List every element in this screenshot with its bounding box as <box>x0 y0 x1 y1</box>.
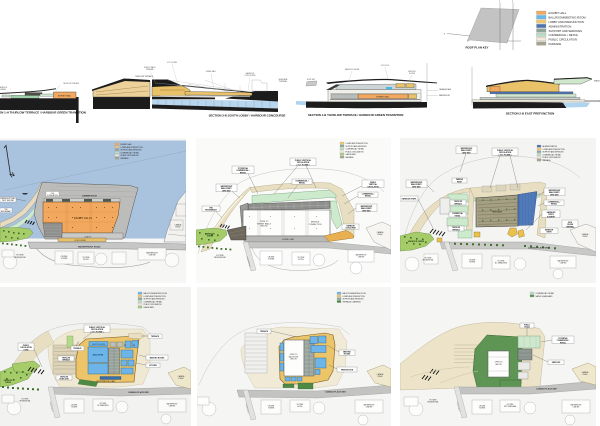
svg-text:SECTION 3-B SOUTH LOBBY / HARB: SECTION 3-B SOUTH LOBBY / HARBOUR CONCOU… <box>209 114 286 118</box>
svg-text:THURLOW TERRACE: THURLOW TERRACE <box>135 75 154 78</box>
svg-text:ROOMS: ROOMS <box>409 73 415 75</box>
svg-text:FUNCTION ROOM: FUNCTION ROOM <box>92 344 106 346</box>
svg-text:PARKADE: PARKADE <box>492 211 503 214</box>
svg-text:LOBBY AND PREFUNCTION: LOBBY AND PREFUNCTION <box>144 295 167 298</box>
svg-text:BIKE WAY: BIKE WAY <box>222 189 231 192</box>
svg-text:MR: MR <box>133 345 135 347</box>
svg-text:HARBOUR STEPS: HARBOUR STEPS <box>402 198 418 201</box>
svg-text:RESIDENTIAL: RESIDENTIAL <box>422 259 433 262</box>
svg-text:TERRACED GARDENS: TERRACED GARDENS <box>343 300 362 303</box>
svg-text:PARKADE: PARKADE <box>543 159 552 162</box>
svg-text:THURLOW: THURLOW <box>452 227 461 229</box>
svg-text:COMMERCIAL / RETAIL: COMMERCIAL / RETAIL <box>144 300 163 303</box>
svg-text:2: 2 <box>512 1 514 3</box>
svg-text:ROOF KEY: ROOF KEY <box>307 79 315 81</box>
svg-text:LOBBY AND PREFUNCTION: LOBBY AND PREFUNCTION <box>343 295 366 298</box>
svg-text:COMMERCIAL / RETAIL: COMMERCIAL / RETAIL <box>536 292 555 295</box>
svg-text:CENTRE: CENTRE <box>149 255 157 257</box>
svg-text:RESIDENTIAL: RESIDENTIAL <box>14 256 26 259</box>
svg-text:COMMERCIAL / RETAIL: COMMERCIAL / RETAIL <box>543 153 562 156</box>
svg-text:( VCC FLUME ): ( VCC FLUME ) <box>91 331 104 333</box>
svg-text:ADMINISTRATION: ADMINISTRATION <box>549 24 572 28</box>
svg-text:3: 3 <box>444 34 446 36</box>
svg-text:CANADA PLACE WAY: CANADA PLACE WAY <box>128 391 150 394</box>
svg-text:SECTION 2-B EAST PREFUNCTION: SECTION 2-B EAST PREFUNCTION <box>506 112 555 116</box>
svg-text:TERRACE: TERRACE <box>73 347 82 350</box>
svg-text:SECTION 1-B THURLOW TERRACE /: SECTION 1-B THURLOW TERRACE / HARBOUR GR… <box>308 113 403 117</box>
svg-text:CORE: CORE <box>24 349 30 351</box>
svg-text:LANDSCAPE: LANDSCAPE <box>144 306 155 309</box>
svg-text:TOWER: TOWER <box>268 259 275 261</box>
svg-text:TERRACE: TERRACE <box>151 335 160 338</box>
svg-text:CENTRE: CENTRE <box>358 257 365 259</box>
svg-text:1: 1 <box>499 1 501 3</box>
svg-text:HARBOUR: HARBOUR <box>0 86 8 89</box>
svg-text:RETAIL: RETAIL <box>560 341 566 344</box>
svg-text:SUPPORT AND SERVICES: SUPPORT AND SERVICES <box>343 298 365 301</box>
svg-text:MEETING ROOMS: MEETING ROOMS <box>150 358 165 360</box>
svg-text:HARBOUR GREEN: HARBOUR GREEN <box>345 68 360 71</box>
svg-text:EXHIBIT HALL: EXHIBIT HALL <box>549 11 567 15</box>
svg-text:HARBOUR GREEN: HARBOUR GREEN <box>408 240 425 243</box>
svg-text:SUPPORT AND SERVICES: SUPPORT AND SERVICES <box>543 151 565 154</box>
svg-text:RETAIL: RETAIL <box>299 182 306 185</box>
svg-text:ADMINISTRATION: ADMINISTRATION <box>543 145 558 148</box>
svg-text:HOTEL: HOTEL <box>298 259 304 261</box>
svg-text:EXHIBIT HALL: EXHIBIT HALL <box>58 94 72 97</box>
svg-text:LOBBY AND PREFUNCTION: LOBBY AND PREFUNCTION <box>121 146 144 149</box>
svg-text:THURLOW: THURLOW <box>62 357 71 359</box>
svg-text:LOBBY AND PREFUNCTION: LOBBY AND PREFUNCTION <box>346 142 369 145</box>
svg-text:BIKE WAY: BIKE WAY <box>362 209 371 212</box>
svg-text:SEASIDE: SEASIDE <box>594 80 600 83</box>
svg-text:COMMERCIAL / RETAIL: COMMERCIAL / RETAIL <box>346 148 365 151</box>
svg-text:CENTRE: CENTRE <box>169 406 176 408</box>
svg-text:CENTRE: CENTRE <box>573 407 580 409</box>
svg-text:MEETING: MEETING <box>408 71 416 73</box>
svg-text:FUTURE: FUTURE <box>507 404 513 406</box>
svg-text:RETAIL: RETAIL <box>365 195 371 198</box>
svg-text:SUPPORT AND SERVICES: SUPPORT AND SERVICES <box>549 29 583 33</box>
svg-text:PUBLIC CIRCULATION: PUBLIC CIRCULATION <box>121 154 140 157</box>
svg-text:WATERFRONT ROAD: WATERFRONT ROAD <box>78 246 101 249</box>
svg-text:RETAIL: RETAIL <box>551 203 557 206</box>
svg-text:LUMBER DOCK: LUMBER DOCK <box>82 196 98 198</box>
svg-text:HOTEL SITE: HOTEL SITE <box>59 379 68 381</box>
svg-text:BIKE WAY: BIKE WAY <box>550 193 559 196</box>
svg-text:THURLOW: THURLOW <box>60 376 69 378</box>
svg-text:TERMINAL: TERMINAL <box>279 80 288 83</box>
svg-text:HOTEL: HOTEL <box>83 259 89 261</box>
svg-text:PARKADE: PARKADE <box>121 157 130 160</box>
svg-text:EXHIBIT HALL: EXHIBIT HALL <box>121 143 132 146</box>
svg-text:LOBBY AND PREFUNCTION: LOBBY AND PREFUNCTION <box>549 20 584 24</box>
svg-text:TOWER: TOWER <box>479 408 486 410</box>
svg-text:GREAT HALL: GREAT HALL <box>206 70 216 73</box>
svg-text:TERRACE: TERRACE <box>260 330 269 333</box>
svg-text:COMMERCIAL / RETAIL: COMMERCIAL / RETAIL <box>121 151 140 154</box>
svg-text:BIKE WAY: BIKE WAY <box>462 151 471 154</box>
svg-text:BELOW: BELOW <box>290 359 297 361</box>
svg-text:RESIDENTIAL: RESIDENTIAL <box>427 401 438 404</box>
svg-text:CANADA PLACE WAY: CANADA PLACE WAY <box>536 388 558 391</box>
svg-text:CIRCULATION: CIRCULATION <box>367 185 379 188</box>
svg-text:CANADA PLACE: CANADA PLACE <box>439 88 451 91</box>
svg-text:BIKE WAY: BIKE WAY <box>412 185 421 188</box>
svg-text:HOTEL: HOTEL <box>297 406 302 408</box>
svg-text:GREEN: GREEN <box>207 236 214 238</box>
svg-text:FUTURE: FUTURE <box>100 403 106 405</box>
svg-text:STEPS: STEPS <box>546 232 551 234</box>
svg-text:SERVICES: SERVICES <box>552 362 561 364</box>
svg-text:PARKADE: PARKADE <box>346 156 355 159</box>
svg-text:LOWER LOBBY: LOWER LOBBY <box>282 239 295 241</box>
svg-text:BALLROOM/MEETING ROOM: BALLROOM/MEETING ROOM <box>343 292 367 295</box>
svg-text:CANADA PLACE WAY: CANADA PLACE WAY <box>528 247 550 250</box>
svg-text:PUBLIC CIRCULATION: PUBLIC CIRCULATION <box>543 156 562 159</box>
svg-text:VCC FLUME: VCC FLUME <box>167 62 178 64</box>
svg-text:PUBLIC CIRCULATION: PUBLIC CIRCULATION <box>346 150 365 153</box>
svg-text:EXHIBIT HALLS: EXHIBIT HALLS <box>74 217 92 220</box>
svg-text:BC SEABUSES: BC SEABUSES <box>495 262 508 265</box>
svg-text:BIKEWAY: BIKEWAY <box>146 68 154 71</box>
svg-text:LANDSCAPE: LANDSCAPE <box>346 153 357 156</box>
svg-text:TOWER: TOWER <box>268 408 275 410</box>
svg-text:PUBLIC: PUBLIC <box>524 324 531 326</box>
svg-text:CENTRE: CENTRE <box>560 263 567 265</box>
svg-text:NATIVE GRASSLAND: NATIVE GRASSLAND <box>536 295 554 298</box>
svg-text:SUPPORT AND SERVICES: SUPPORT AND SERVICES <box>121 149 143 152</box>
svg-text:ROOF PLAN KEY: ROOF PLAN KEY <box>466 46 489 50</box>
svg-text:THE: THE <box>5 209 8 211</box>
svg-text:BELOW: BELOW <box>261 226 268 228</box>
svg-text:CANADA PLACE WAY: CANADA PLACE WAY <box>325 391 347 394</box>
svg-text:PUBLIC CIRCULATION: PUBLIC CIRCULATION <box>549 38 578 42</box>
svg-text:ELEMENT: ELEMENT <box>547 216 556 218</box>
svg-text:PILE: PILE <box>51 193 54 195</box>
svg-text:CRUISE: CRUISE <box>567 224 573 226</box>
svg-text:ON 1-H THURLOW TERRACE / HARBO: ON 1-H THURLOW TERRACE / HARBOUR GREEN T… <box>0 111 86 115</box>
svg-text:WATERFRONT: WATERFRONT <box>439 94 450 97</box>
svg-text:BELOW: BELOW <box>495 364 502 366</box>
svg-text:BALLROOM: BALLROOM <box>93 354 104 357</box>
svg-text:BALLROOM/MEETING ROOM: BALLROOM/MEETING ROOM <box>549 16 587 20</box>
svg-text:TOWER: TOWER <box>61 258 68 260</box>
svg-text:PREFUNCTION: PREFUNCTION <box>341 370 354 372</box>
svg-text:BALLROOM/MEETING ROOM: BALLROOM/MEETING ROOM <box>144 292 168 295</box>
svg-text:( VCC FLUME ): ( VCC FLUME ) <box>297 164 310 166</box>
svg-text:CONNECTION: CONNECTION <box>309 224 322 226</box>
svg-text:( VCC FLUME ): ( VCC FLUME ) <box>499 154 512 156</box>
svg-text:ROOMS: ROOMS <box>344 354 351 356</box>
svg-text:EXHIBIT HALL: EXHIBIT HALL <box>376 95 390 98</box>
svg-text:REGISTRATION LOBBY: REGISTRATION LOBBY <box>97 380 117 383</box>
svg-text:CONCOURSE: CONCOURSE <box>245 75 257 77</box>
svg-text:FUTURE: FUTURE <box>297 404 303 406</box>
svg-text:PUBLIC CIRCULATION: PUBLIC CIRCULATION <box>144 303 163 306</box>
svg-text:THURLOW: THURLOW <box>454 201 463 203</box>
svg-text:GREEN: GREEN <box>0 89 7 91</box>
svg-text:CONCOURSE: CONCOURSE <box>345 228 355 230</box>
svg-text:PARKADE: PARKADE <box>549 42 562 46</box>
svg-text:THURLOW TERRACE: THURLOW TERRACE <box>63 82 79 85</box>
svg-text:SUPPORT AND SERVICES: SUPPORT AND SERVICES <box>346 145 368 148</box>
svg-text:LOBBY AND PREFUNCTION: LOBBY AND PREFUNCTION <box>543 148 566 151</box>
svg-text:RESIDENTIAL: RESIDENTIAL <box>214 256 226 259</box>
svg-text:RETAIL: RETAIL <box>240 171 247 174</box>
svg-text:RESIDENTIAL: RESIDENTIAL <box>19 400 30 403</box>
svg-text:MR: MR <box>124 345 126 347</box>
svg-text:TOWER: TOWER <box>469 262 476 264</box>
svg-text:SUPPORT AND SERVICES: SUPPORT AND SERVICES <box>144 298 166 301</box>
svg-text:GREEN: GREEN <box>5 382 12 384</box>
svg-text:TOWER: TOWER <box>71 407 78 409</box>
svg-text:CENTRE: CENTRE <box>366 407 373 409</box>
svg-text:CONCOURSE: CONCOURSE <box>74 240 86 242</box>
svg-text:RESTAURANT: RESTAURANT <box>205 209 217 212</box>
svg-text:COMMERCIAL / RETAIL: COMMERCIAL / RETAIL <box>549 33 579 37</box>
svg-text:VCC ROOF: VCC ROOF <box>381 65 389 67</box>
svg-text:KITCHEN: KITCHEN <box>149 365 157 367</box>
